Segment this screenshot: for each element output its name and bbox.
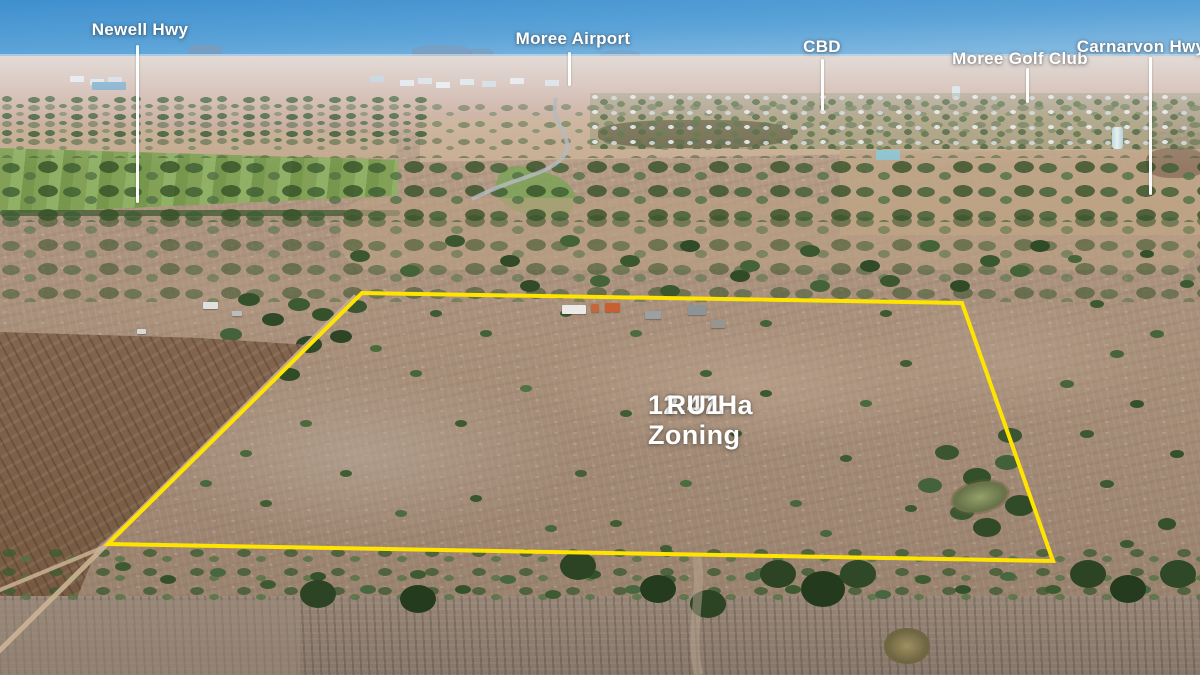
overlay-graphics — [0, 0, 1200, 675]
aerial-photo: Newell Hwy Moree Airport CBD Moree Golf … — [0, 0, 1200, 675]
highway-road — [472, 98, 567, 199]
parcel-zoning-value: RU1 Zoning — [648, 390, 740, 450]
farm-track — [695, 556, 699, 675]
dirt-road — [0, 547, 104, 592]
property-boundary — [108, 293, 1053, 561]
